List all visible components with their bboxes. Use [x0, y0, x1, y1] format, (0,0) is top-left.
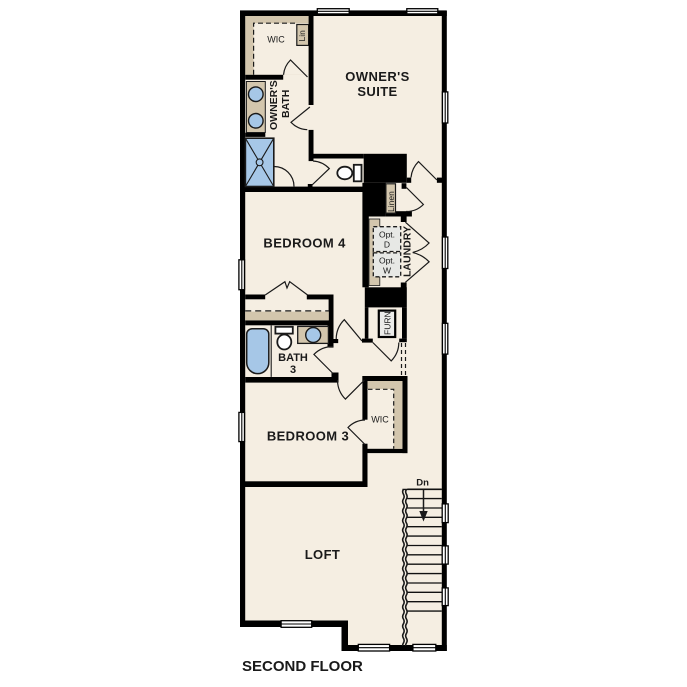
svg-text:BEDROOM 4: BEDROOM 4	[263, 236, 346, 251]
svg-text:Lin: Lin	[297, 30, 307, 42]
svg-text:SECOND FLOOR: SECOND FLOOR	[242, 658, 363, 675]
svg-text:Opt.: Opt.	[379, 256, 395, 266]
svg-text:W: W	[383, 266, 391, 276]
svg-text:FURN: FURN	[383, 311, 393, 335]
svg-text:SUITE: SUITE	[357, 84, 397, 99]
svg-text:BATH: BATH	[280, 90, 292, 118]
svg-text:WIC: WIC	[267, 35, 285, 45]
svg-text:Linen: Linen	[386, 191, 396, 212]
svg-text:3: 3	[290, 364, 296, 376]
svg-text:LAUNDRY: LAUNDRY	[402, 226, 414, 277]
svg-text:OWNER'S: OWNER'S	[345, 69, 409, 84]
svg-text:BATH: BATH	[278, 352, 308, 364]
svg-text:Opt.: Opt.	[379, 230, 395, 240]
svg-text:OWNER'S: OWNER'S	[268, 80, 280, 130]
svg-text:BEDROOM 3: BEDROOM 3	[267, 429, 349, 444]
svg-text:WIC: WIC	[371, 415, 389, 425]
svg-text:D: D	[384, 240, 390, 250]
svg-text:LOFT: LOFT	[305, 547, 341, 562]
svg-text:Dn: Dn	[416, 477, 429, 488]
